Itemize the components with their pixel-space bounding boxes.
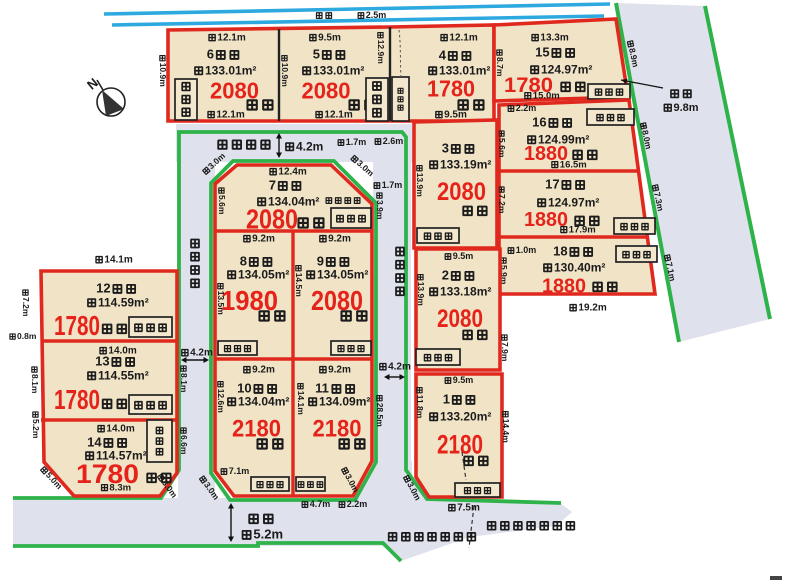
svg-text:7: 7 [269, 178, 276, 193]
svg-text:130.40m²: 130.40m² [554, 260, 605, 274]
svg-text:1: 1 [443, 392, 450, 407]
svg-text:114.55m²: 114.55m² [98, 368, 149, 382]
svg-text:12.1m: 12.1m [216, 110, 244, 121]
svg-text:2: 2 [442, 268, 449, 283]
svg-text:9.8m: 9.8m [674, 102, 699, 114]
svg-text:12: 12 [96, 281, 110, 296]
svg-text:13.3m: 13.3m [540, 33, 568, 44]
svg-text:12.1m: 12.1m [449, 33, 477, 44]
svg-text:7.2m: 7.2m [21, 297, 31, 317]
svg-text:9.5m: 9.5m [318, 33, 341, 44]
svg-text:14.1m: 14.1m [296, 391, 306, 416]
svg-text:19.2m: 19.2m [578, 303, 606, 314]
svg-text:2080: 2080 [311, 285, 363, 316]
svg-text:16.5m: 16.5m [560, 159, 587, 170]
svg-text:17.9m: 17.9m [569, 224, 596, 235]
svg-text:4.2m: 4.2m [296, 139, 323, 153]
svg-text:14.0m: 14.0m [108, 346, 136, 357]
svg-text:12.1m: 12.1m [324, 110, 352, 121]
svg-text:10.9m: 10.9m [280, 63, 290, 88]
svg-text:7.1m: 7.1m [229, 466, 250, 476]
svg-text:12.6m: 12.6m [216, 389, 226, 414]
svg-text:10.9m: 10.9m [158, 63, 168, 88]
svg-text:8.1m: 8.1m [30, 374, 40, 394]
svg-text:1880: 1880 [542, 276, 586, 298]
svg-text:15.0m: 15.0m [533, 90, 560, 101]
svg-text:133.19m²: 133.19m² [440, 157, 491, 171]
svg-text:4.2m: 4.2m [388, 362, 411, 373]
svg-text:13: 13 [95, 354, 109, 369]
svg-text:1.7m: 1.7m [346, 137, 367, 147]
svg-text:9.5m: 9.5m [444, 110, 467, 121]
svg-text:2180: 2180 [313, 416, 362, 443]
svg-text:14.0m: 14.0m [106, 424, 134, 435]
svg-text:9.2m: 9.2m [328, 234, 351, 245]
svg-text:8.3m: 8.3m [109, 482, 131, 493]
svg-text:12.9m: 12.9m [376, 40, 386, 65]
svg-text:3.9m: 3.9m [375, 200, 385, 220]
svg-text:134.05m²: 134.05m² [238, 267, 289, 281]
svg-text:7.5m: 7.5m [457, 503, 480, 514]
svg-text:133.01m²: 133.01m² [205, 63, 256, 77]
svg-text:134.05m²: 134.05m² [317, 267, 368, 281]
svg-text:16: 16 [532, 115, 546, 130]
svg-text:2.6m: 2.6m [383, 136, 404, 146]
svg-text:134.04m²: 134.04m² [238, 394, 289, 408]
svg-text:2080: 2080 [302, 78, 351, 104]
svg-text:6: 6 [207, 47, 214, 62]
svg-text:8.7m: 8.7m [495, 57, 505, 77]
svg-text:124.97m²: 124.97m² [548, 195, 599, 209]
svg-text:9.5m: 9.5m [453, 375, 474, 385]
svg-text:1780: 1780 [427, 76, 475, 102]
svg-text:2080: 2080 [437, 178, 486, 206]
svg-text:13.5m: 13.5m [216, 291, 226, 316]
svg-text:9.5m: 9.5m [453, 251, 474, 261]
svg-text:1780: 1780 [54, 384, 100, 415]
svg-text:2.2m: 2.2m [347, 499, 368, 509]
svg-text:133.18m²: 133.18m² [440, 284, 491, 298]
svg-text:1.7m: 1.7m [382, 180, 403, 190]
svg-text:9.2m: 9.2m [252, 365, 275, 376]
svg-text:15: 15 [535, 45, 549, 60]
svg-text:0.8m: 0.8m [17, 331, 37, 341]
svg-text:9.2m: 9.2m [252, 234, 275, 245]
svg-text:14.5m: 14.5m [294, 273, 304, 298]
svg-text:6.6m: 6.6m [179, 435, 189, 455]
svg-text:12.4m: 12.4m [278, 167, 306, 178]
svg-text:1780: 1780 [54, 310, 100, 341]
svg-text:2.5m: 2.5m [366, 10, 387, 20]
svg-text:14.1m: 14.1m [104, 255, 132, 266]
svg-text:2080: 2080 [246, 204, 298, 235]
svg-text:114.59m²: 114.59m² [98, 295, 149, 309]
svg-text:5: 5 [313, 47, 320, 62]
svg-text:133.20m²: 133.20m² [440, 409, 491, 423]
svg-text:5.2m: 5.2m [31, 419, 41, 439]
svg-text:2080: 2080 [437, 305, 483, 333]
svg-text:5.6m: 5.6m [217, 195, 227, 215]
svg-text:133.01m²: 133.01m² [313, 63, 364, 77]
svg-text:2.2m: 2.2m [516, 103, 537, 113]
svg-text:3: 3 [442, 141, 449, 156]
svg-text:1.0m: 1.0m [516, 245, 537, 255]
svg-text:4: 4 [439, 48, 447, 63]
svg-text:28.5m: 28.5m [375, 403, 385, 428]
svg-text:5.2m: 5.2m [253, 527, 283, 542]
svg-text:13.9m: 13.9m [415, 173, 425, 198]
svg-text:17: 17 [545, 177, 559, 192]
svg-text:7.9m: 7.9m [500, 342, 510, 362]
svg-text:14.4m: 14.4m [501, 419, 511, 444]
svg-text:12.1m: 12.1m [217, 33, 245, 44]
svg-text:11.8m: 11.8m [415, 395, 425, 419]
svg-text:4.7m: 4.7m [310, 499, 331, 509]
svg-text:4.2m: 4.2m [190, 348, 213, 359]
svg-text:13.9m: 13.9m [416, 282, 426, 307]
svg-text:18: 18 [553, 244, 567, 259]
svg-text:134.09m²: 134.09m² [319, 394, 370, 408]
svg-text:2180: 2180 [437, 430, 483, 460]
svg-text:9.2m: 9.2m [328, 365, 351, 376]
svg-text:8.1m: 8.1m [179, 373, 189, 393]
